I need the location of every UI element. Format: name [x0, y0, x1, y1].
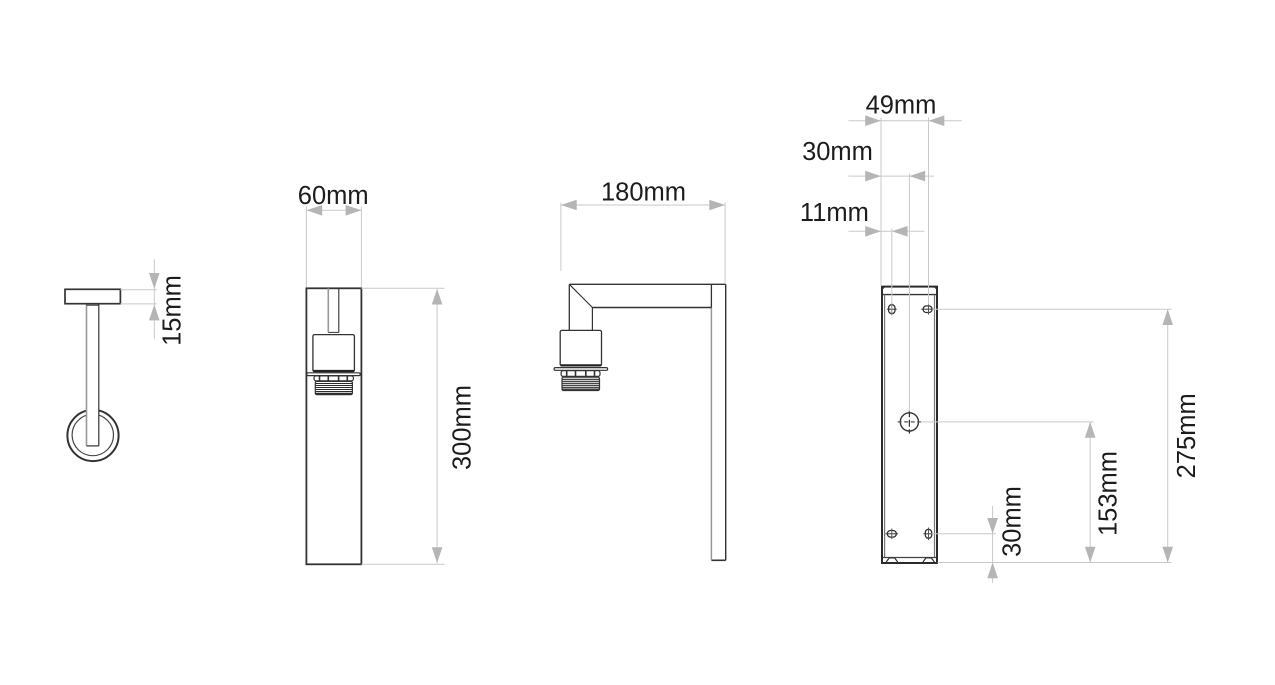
- svg-text:11mm: 11mm: [800, 199, 869, 227]
- svg-text:60mm: 60mm: [298, 182, 369, 210]
- svg-text:30mm: 30mm: [802, 138, 873, 166]
- svg-text:300mm: 300mm: [448, 385, 476, 470]
- svg-text:153mm: 153mm: [1095, 451, 1123, 536]
- svg-text:15mm: 15mm: [159, 275, 187, 346]
- svg-text:180mm: 180mm: [601, 178, 686, 206]
- svg-text:30mm: 30mm: [999, 486, 1027, 557]
- svg-text:275mm: 275mm: [1173, 393, 1201, 478]
- svg-text:49mm: 49mm: [866, 92, 937, 120]
